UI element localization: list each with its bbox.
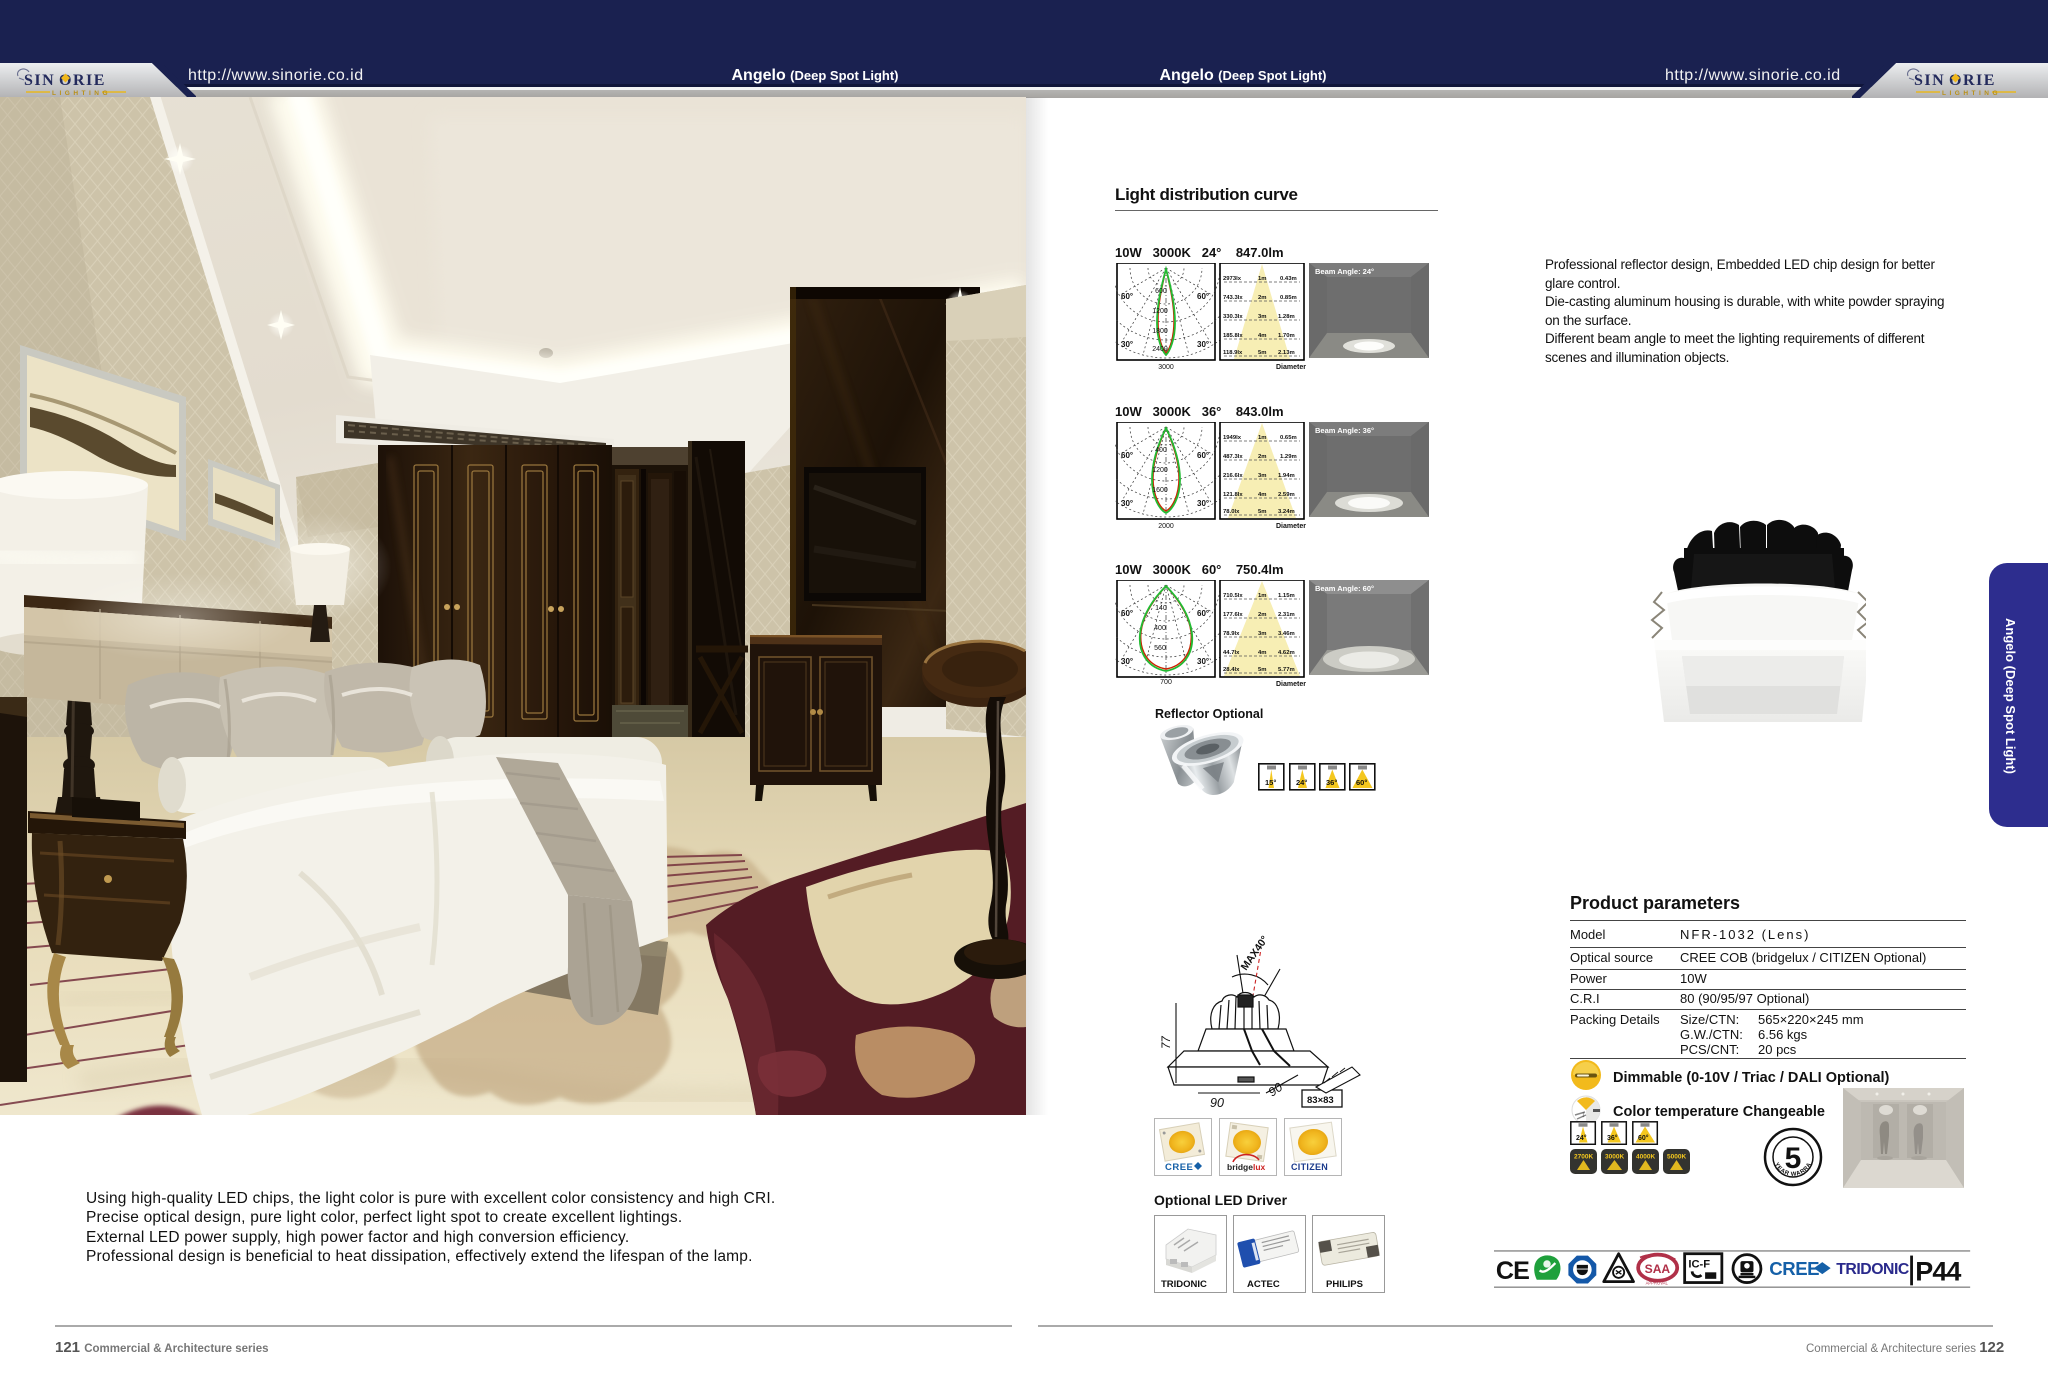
svg-text:5000K: 5000K bbox=[1667, 1154, 1686, 1161]
svg-text:1.29m: 1.29m bbox=[1280, 454, 1297, 460]
svg-text:APPROVAL: APPROVAL bbox=[1646, 1280, 1669, 1285]
svg-text:1m: 1m bbox=[1258, 593, 1267, 599]
svg-text:3000K: 3000K bbox=[1605, 1154, 1624, 1161]
svg-text:Beam Angle: 60°: Beam Angle: 60° bbox=[1315, 584, 1374, 593]
svg-text:24°: 24° bbox=[1576, 1134, 1587, 1142]
svg-text:5.77m: 5.77m bbox=[1278, 667, 1295, 673]
svg-text:5: 5 bbox=[1785, 1142, 1802, 1175]
svg-text:30°: 30° bbox=[1197, 340, 1209, 349]
svg-text:1949lx: 1949lx bbox=[1223, 435, 1242, 441]
svg-text:1.70m: 1.70m bbox=[1278, 333, 1295, 339]
svg-text:30°: 30° bbox=[1121, 499, 1133, 508]
svg-text:5m: 5m bbox=[1258, 667, 1267, 673]
svg-text:24°: 24° bbox=[1296, 778, 1307, 787]
svg-text:bridgelux: bridgelux bbox=[1227, 1162, 1266, 1172]
svg-text:ACTEC: ACTEC bbox=[1247, 1279, 1280, 1290]
svg-text:140: 140 bbox=[1155, 605, 1167, 612]
svg-text:2m: 2m bbox=[1258, 612, 1267, 618]
svg-text:2000: 2000 bbox=[1158, 523, 1174, 530]
svg-text:1.15m: 1.15m bbox=[1278, 593, 1295, 599]
svg-text:121.8lx: 121.8lx bbox=[1223, 492, 1243, 498]
svg-text:44.7lx: 44.7lx bbox=[1223, 650, 1240, 656]
svg-text:P44: P44 bbox=[1915, 1257, 1961, 1287]
svg-text:30°: 30° bbox=[1197, 657, 1209, 666]
svg-text:118.9lx: 118.9lx bbox=[1223, 350, 1243, 356]
svg-text:Diameter: Diameter bbox=[1276, 681, 1306, 688]
svg-text:LIGHTING: LIGHTING bbox=[1942, 90, 2001, 97]
svg-text:60°: 60° bbox=[1121, 609, 1133, 618]
svg-text:710.5lx: 710.5lx bbox=[1223, 593, 1243, 599]
svg-text:600: 600 bbox=[1155, 288, 1167, 295]
svg-text:CЕ: CЕ bbox=[1496, 1257, 1529, 1285]
svg-text:60°: 60° bbox=[1197, 609, 1209, 618]
svg-text:1m: 1m bbox=[1258, 435, 1267, 441]
svg-text:3000: 3000 bbox=[1158, 364, 1174, 371]
svg-text:0.43m: 0.43m bbox=[1280, 276, 1297, 282]
svg-text:36°: 36° bbox=[1607, 1134, 1618, 1142]
svg-text:2m: 2m bbox=[1258, 295, 1267, 301]
svg-text:PHILIPS: PHILIPS bbox=[1326, 1279, 1363, 1290]
svg-text:60°: 60° bbox=[1638, 1134, 1649, 1142]
svg-text:400: 400 bbox=[1154, 625, 1166, 632]
svg-text:SIN: SIN bbox=[24, 72, 55, 89]
svg-text:60°: 60° bbox=[1121, 451, 1133, 460]
svg-text:Beam Angle: 36°: Beam Angle: 36° bbox=[1315, 426, 1374, 435]
svg-text:743.3lx: 743.3lx bbox=[1223, 295, 1243, 301]
svg-text:RIE: RIE bbox=[73, 72, 106, 89]
svg-text:4000K: 4000K bbox=[1636, 1154, 1655, 1161]
svg-text:330.3lx: 330.3lx bbox=[1223, 314, 1243, 320]
svg-text:3m: 3m bbox=[1258, 631, 1267, 637]
svg-text:1.28m: 1.28m bbox=[1278, 314, 1295, 320]
svg-text:28.4lx: 28.4lx bbox=[1223, 667, 1240, 673]
svg-text:2400: 2400 bbox=[1152, 346, 1168, 353]
svg-text:TRIDONIC: TRIDONIC bbox=[1161, 1279, 1207, 1290]
svg-text:4m: 4m bbox=[1258, 650, 1267, 656]
svg-text:Beam Angle: 24°: Beam Angle: 24° bbox=[1315, 267, 1374, 276]
svg-text:30°: 30° bbox=[1121, 340, 1133, 349]
svg-text:30°: 30° bbox=[1197, 499, 1209, 508]
svg-text:RIE: RIE bbox=[1963, 72, 1996, 89]
svg-text:0.85m: 0.85m bbox=[1280, 295, 1297, 301]
svg-text:60°: 60° bbox=[1121, 292, 1133, 301]
svg-text:LIGHTING: LIGHTING bbox=[52, 90, 111, 97]
svg-text:30°: 30° bbox=[1121, 657, 1133, 666]
svg-text:560: 560 bbox=[1154, 645, 1166, 652]
svg-text:0.65m: 0.65m bbox=[1280, 435, 1297, 441]
svg-text:2973lx: 2973lx bbox=[1223, 276, 1242, 282]
svg-text:3m: 3m bbox=[1258, 314, 1267, 320]
svg-text:CREE: CREE bbox=[1769, 1258, 1819, 1279]
svg-text:90: 90 bbox=[1210, 1096, 1224, 1110]
svg-text:IC-F: IC-F bbox=[1688, 1259, 1710, 1271]
svg-text:↕: ↕ bbox=[1581, 1109, 1586, 1119]
svg-text:78.0lx: 78.0lx bbox=[1223, 509, 1240, 515]
svg-text:2700K: 2700K bbox=[1574, 1154, 1593, 1161]
svg-text:1200: 1200 bbox=[1152, 467, 1168, 474]
svg-text:4.62m: 4.62m bbox=[1278, 650, 1295, 656]
svg-text:2.59m: 2.59m bbox=[1278, 492, 1295, 498]
svg-text:83×83: 83×83 bbox=[1307, 1095, 1334, 1106]
svg-text:1.94m: 1.94m bbox=[1278, 473, 1295, 479]
svg-text:4m: 4m bbox=[1258, 333, 1267, 339]
svg-text:3m: 3m bbox=[1258, 473, 1267, 479]
svg-text:Diameter: Diameter bbox=[1276, 523, 1306, 530]
svg-text:TRIDONIC: TRIDONIC bbox=[1836, 1261, 1909, 1278]
svg-text:CREE: CREE bbox=[1165, 1162, 1193, 1173]
svg-text:4m: 4m bbox=[1258, 492, 1267, 498]
svg-text:2.13m: 2.13m bbox=[1278, 350, 1295, 356]
svg-text:1800: 1800 bbox=[1152, 328, 1168, 335]
svg-text:5m: 5m bbox=[1258, 509, 1267, 515]
svg-text:216.6lx: 216.6lx bbox=[1223, 473, 1243, 479]
svg-text:Diameter: Diameter bbox=[1276, 364, 1306, 371]
svg-text:SAA: SAA bbox=[1645, 1262, 1671, 1276]
svg-text:CITIZEN: CITIZEN bbox=[1291, 1162, 1328, 1172]
svg-text:1600: 1600 bbox=[1152, 487, 1168, 494]
svg-text:MAX40°: MAX40° bbox=[1239, 934, 1271, 973]
svg-text:2.31m: 2.31m bbox=[1278, 612, 1295, 618]
svg-text:77: 77 bbox=[1161, 1036, 1173, 1049]
svg-text:400: 400 bbox=[1155, 447, 1167, 454]
svg-text:60°: 60° bbox=[1197, 451, 1209, 460]
svg-text:60°: 60° bbox=[1356, 778, 1367, 787]
svg-text:1200: 1200 bbox=[1152, 308, 1168, 315]
svg-text:185.8lx: 185.8lx bbox=[1223, 333, 1243, 339]
svg-text:3.24m: 3.24m bbox=[1278, 509, 1295, 515]
svg-text:78.9lx: 78.9lx bbox=[1223, 631, 1240, 637]
svg-text:15°: 15° bbox=[1265, 778, 1276, 787]
svg-text:700: 700 bbox=[1160, 679, 1172, 686]
svg-text:177.6lx: 177.6lx bbox=[1223, 612, 1243, 618]
svg-text:SIN: SIN bbox=[1914, 72, 1945, 89]
svg-text:487.3lx: 487.3lx bbox=[1223, 454, 1243, 460]
svg-text:1m: 1m bbox=[1258, 276, 1267, 282]
svg-text:3.46m: 3.46m bbox=[1278, 631, 1295, 637]
svg-text:5m: 5m bbox=[1258, 350, 1267, 356]
svg-text:36°: 36° bbox=[1326, 778, 1337, 787]
svg-text:60°: 60° bbox=[1197, 292, 1209, 301]
svg-text:2m: 2m bbox=[1258, 454, 1267, 460]
